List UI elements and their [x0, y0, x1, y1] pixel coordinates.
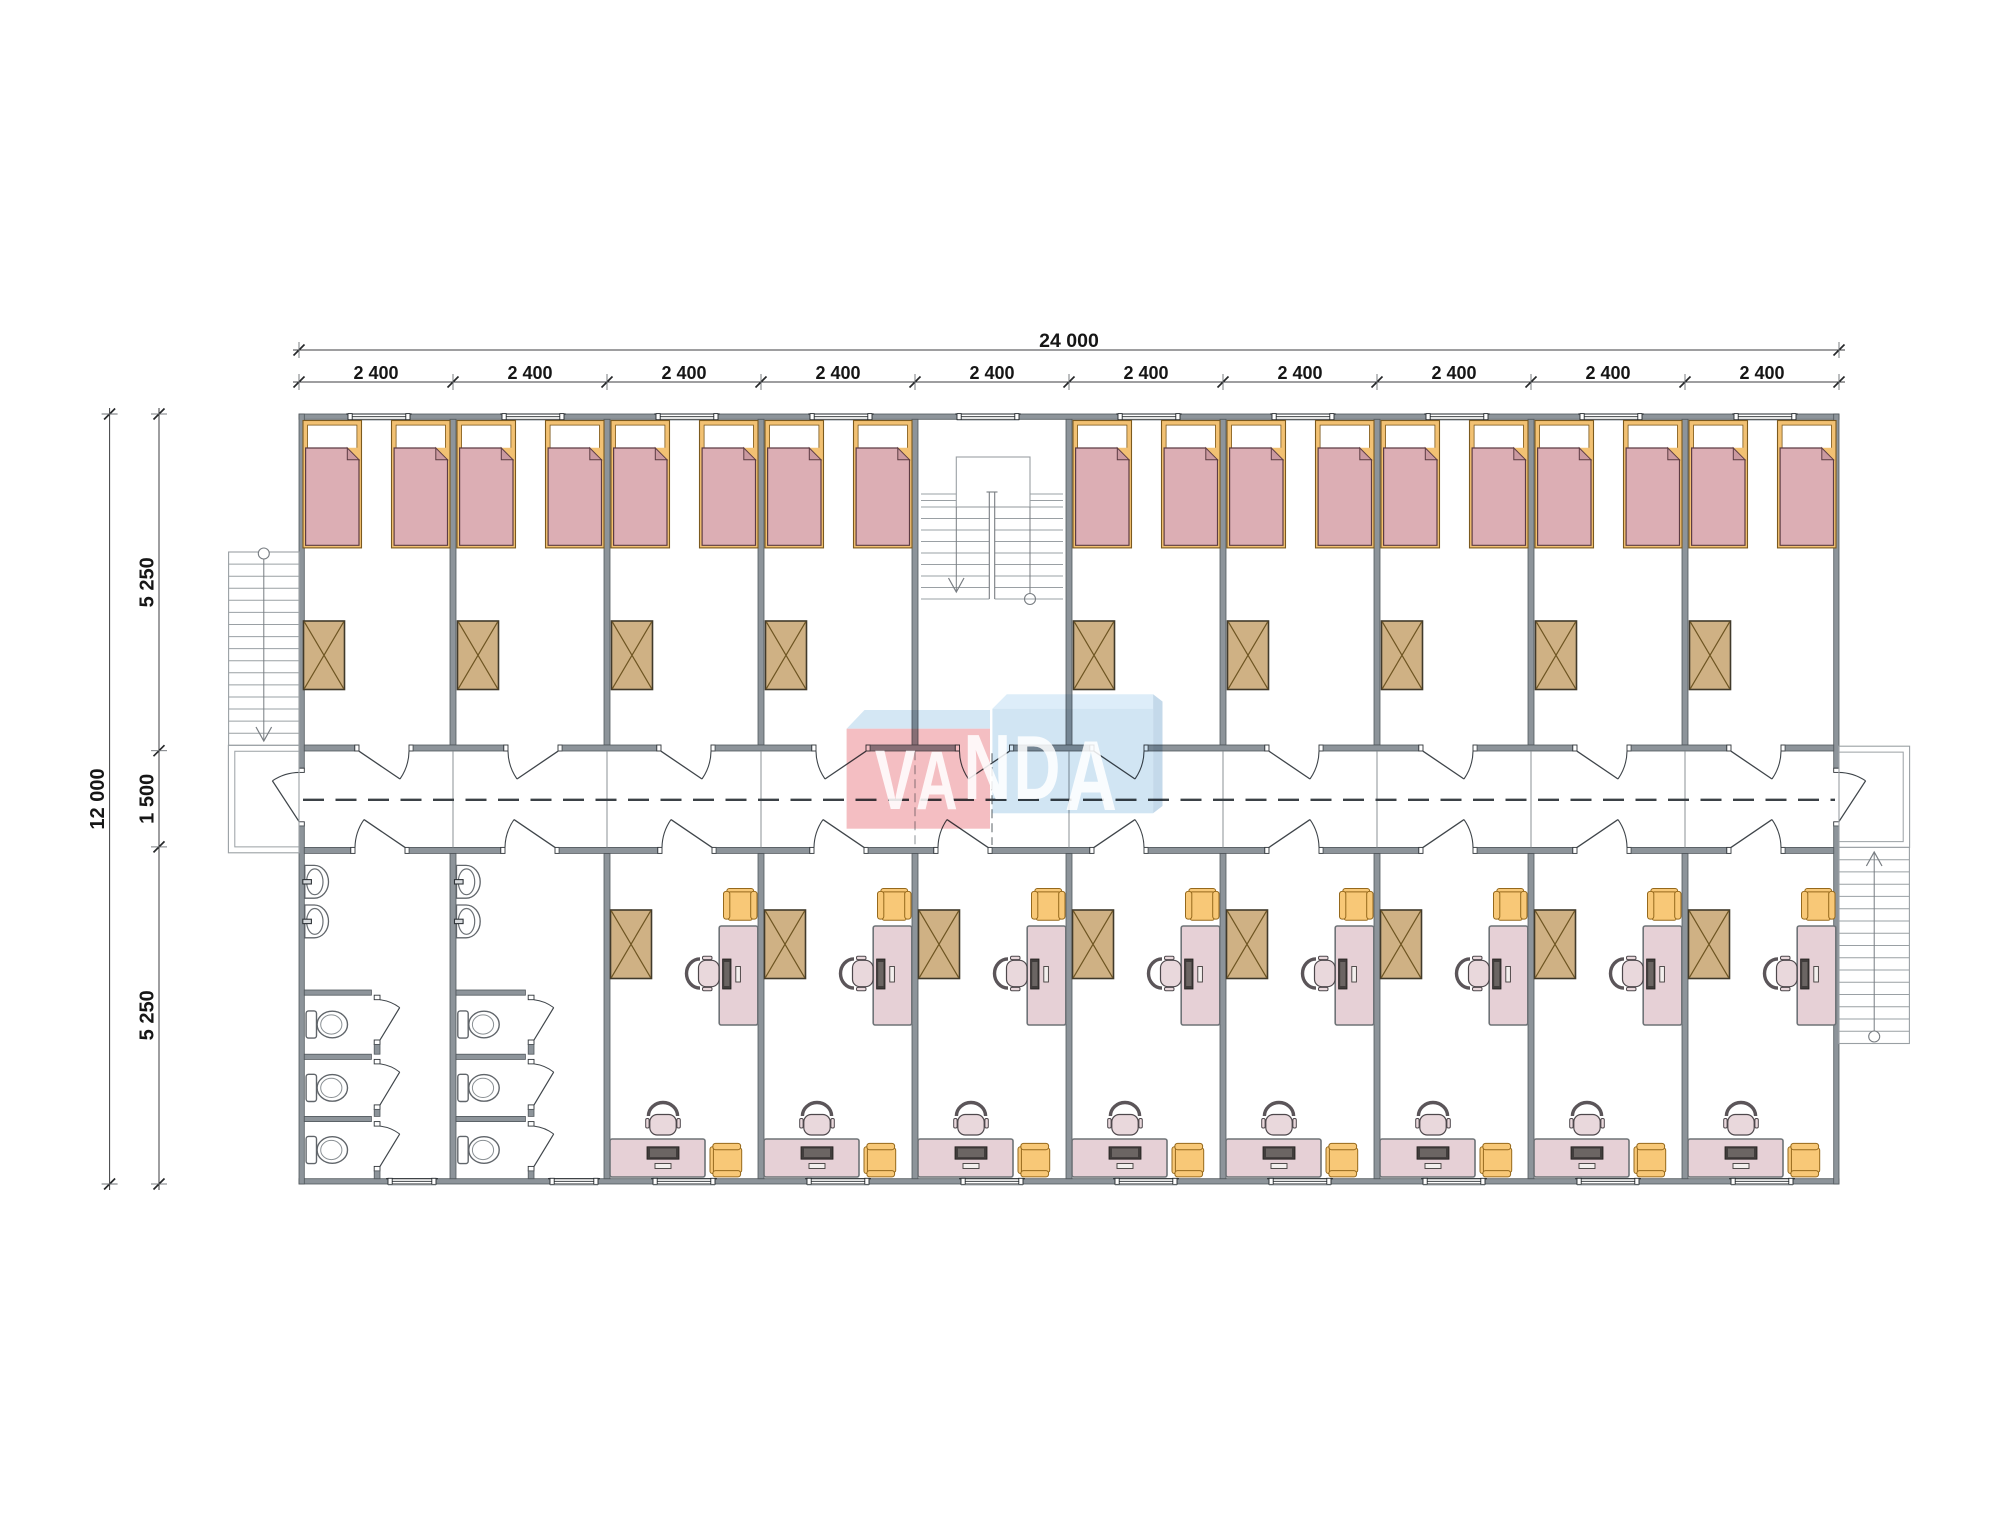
- svg-text:5 250: 5 250: [137, 990, 159, 1040]
- svg-text:2 400: 2 400: [661, 363, 706, 383]
- svg-text:2 400: 2 400: [815, 363, 860, 383]
- svg-text:2 400: 2 400: [1585, 363, 1630, 383]
- svg-text:24 000: 24 000: [1039, 330, 1099, 352]
- svg-text:1 500: 1 500: [137, 774, 159, 824]
- svg-text:2 400: 2 400: [1277, 363, 1322, 383]
- svg-text:2 400: 2 400: [353, 363, 398, 383]
- svg-text:2 400: 2 400: [1431, 363, 1476, 383]
- svg-text:A: A: [916, 734, 958, 827]
- svg-text:2 400: 2 400: [1123, 363, 1168, 383]
- svg-text:5 250: 5 250: [137, 557, 159, 607]
- svg-text:D: D: [1014, 717, 1061, 819]
- svg-text:A: A: [1065, 721, 1117, 832]
- svg-text:V: V: [875, 733, 916, 827]
- svg-text:2 400: 2 400: [969, 363, 1014, 383]
- svg-text:12 000: 12 000: [87, 768, 109, 829]
- svg-text:2 400: 2 400: [507, 363, 552, 383]
- svg-text:2 400: 2 400: [1739, 363, 1784, 383]
- svg-text:N: N: [963, 715, 1011, 819]
